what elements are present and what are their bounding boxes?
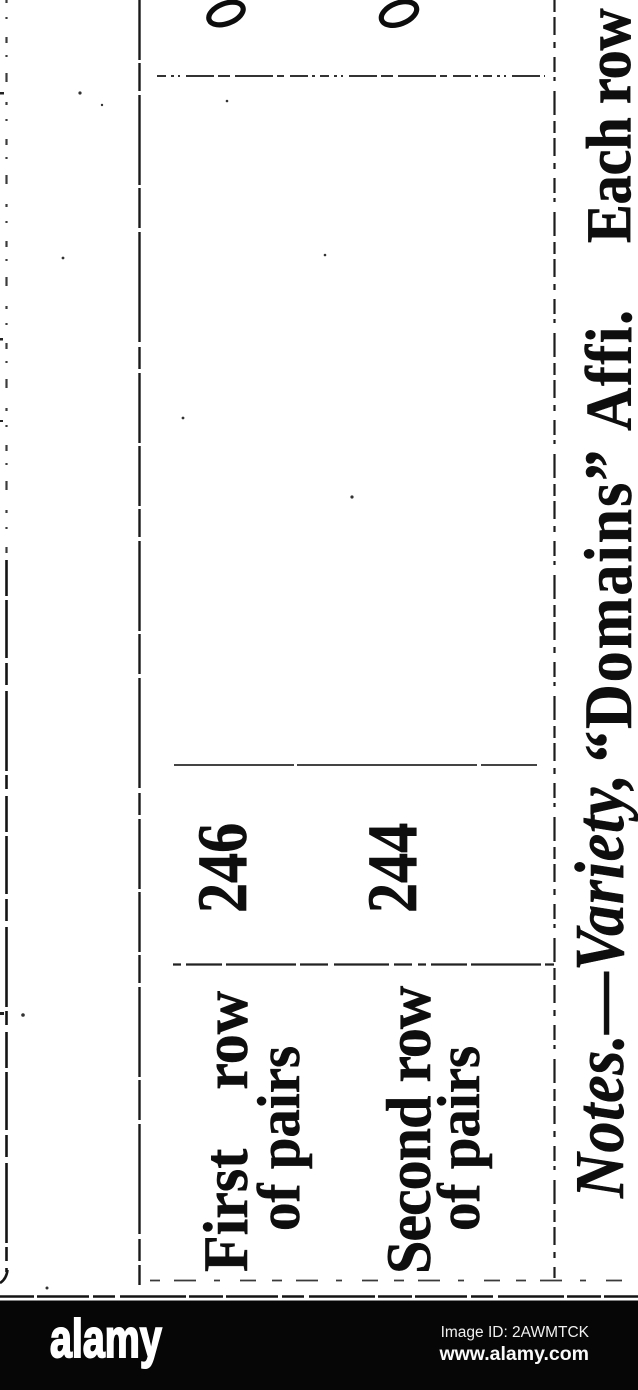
svg-text:“Domains”: “Domains” (571, 448, 638, 762)
svg-text:of pairs: of pairs (426, 1046, 493, 1231)
svg-text:244: 244 (353, 823, 432, 913)
svg-text:Affi.: Affi. (572, 309, 638, 431)
svg-text:www.alamy.com: www.alamy.com (438, 1343, 589, 1365)
svg-text:Each: Each (575, 117, 638, 243)
svg-text:246: 246 (183, 823, 262, 913)
svg-text:of pairs: of pairs (246, 1046, 313, 1231)
svg-text:Image ID: 2AWMTCK: Image ID: 2AWMTCK (441, 1324, 590, 1341)
svg-text:row: row (575, 8, 638, 104)
svg-text:alamy: alamy (50, 1309, 162, 1370)
svg-text:Notes.—Variety,: Notes.—Variety, (562, 773, 638, 1199)
